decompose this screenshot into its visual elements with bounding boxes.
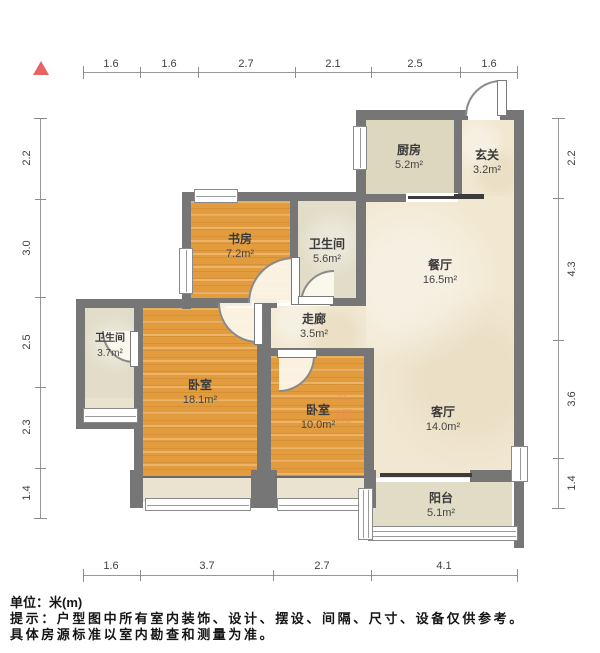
room-label-study: 书房 7.2m²	[200, 232, 280, 262]
window	[353, 126, 367, 170]
dimension-tick	[553, 198, 564, 199]
dimension-tick	[553, 340, 564, 341]
dimension-label: 3.7	[189, 559, 225, 573]
dimension-line-right	[558, 118, 559, 508]
window	[194, 189, 238, 203]
room-name: 阳台	[401, 491, 481, 506]
dimension-label: 1.6	[93, 559, 129, 573]
watermark: 正顺	[330, 385, 355, 431]
master-bedroom-door-leaf	[254, 303, 263, 345]
dimension-tick	[34, 118, 47, 119]
dimension-label: 3.6	[565, 381, 579, 417]
dimension-tick	[35, 199, 46, 200]
room-label-bath-main: 卫生间 5.6m²	[287, 237, 367, 267]
dimension-tick	[83, 66, 84, 79]
dimension-tick	[83, 569, 84, 582]
dimension-tick	[460, 67, 461, 78]
dimension-tick	[35, 387, 46, 388]
dimension-tick	[553, 458, 564, 459]
room-name: 卫生间	[78, 331, 142, 346]
dimension-tick	[552, 508, 565, 509]
balcony-railing	[368, 526, 518, 541]
room-label-corridor: 走廊 3.5m²	[274, 312, 354, 342]
room-name: 卫生间	[287, 237, 367, 252]
sliding-door	[408, 196, 456, 199]
dimension-line-top	[83, 72, 518, 73]
wall	[330, 298, 366, 306]
room-area: 5.1m²	[401, 506, 481, 521]
balcony-railing	[358, 488, 373, 540]
disclaimer-line-2: 具体房源标准以室内勘查和测量为准。	[10, 624, 275, 643]
dimension-tick	[517, 569, 518, 582]
dimension-tick	[140, 67, 141, 78]
dimension-label: 1.4	[20, 475, 34, 511]
dimension-label: 2.5	[397, 57, 433, 71]
room-name: 厨房	[369, 143, 449, 158]
dimension-label: 2.2	[565, 140, 579, 176]
dimension-tick	[517, 66, 518, 79]
dimension-tick	[552, 118, 565, 119]
north-arrow-icon	[33, 61, 49, 75]
dimension-label: 1.6	[93, 57, 129, 71]
wall	[130, 470, 143, 508]
room-name: 客厅	[403, 405, 483, 420]
dimension-label: 4.3	[565, 251, 579, 287]
room-label-bath-small: 卫生间 3.7m²	[78, 331, 142, 361]
floorplan-page: { "rooms": { "kitchen": {"name": "厨房", "…	[0, 0, 600, 653]
room-area: 5.2m²	[369, 158, 449, 173]
wall	[470, 470, 516, 482]
bay-window	[277, 498, 364, 511]
wall	[364, 348, 374, 478]
entry-door-arc	[465, 80, 501, 116]
bath-main-door-leaf	[298, 296, 334, 305]
dimension-label: 1.6	[151, 57, 187, 71]
dimension-label: 2.7	[304, 559, 340, 573]
room-label-balcony: 阳台 5.1m²	[401, 491, 481, 521]
dimension-tick	[371, 67, 372, 78]
dimension-label: 2.5	[20, 324, 34, 360]
room-area: 16.5m²	[400, 273, 480, 288]
room-area: 3.7m²	[78, 346, 142, 361]
window	[83, 408, 138, 423]
room-area: 14.0m²	[403, 420, 483, 435]
room-area: 7.2m²	[200, 247, 280, 262]
dimension-label: 4.1	[426, 559, 462, 573]
bay-window	[145, 498, 251, 511]
bay-window-frame	[143, 476, 251, 478]
dimension-tick	[273, 570, 274, 581]
dimension-tick	[35, 297, 46, 298]
dimension-tick	[198, 67, 199, 78]
dimension-label: 2.2	[20, 140, 34, 176]
dimension-tick	[140, 570, 141, 581]
dimension-label: 3.0	[20, 230, 34, 266]
floor-dining-living	[366, 196, 514, 478]
room-label-dining: 餐厅 16.5m²	[400, 258, 480, 288]
room-label-bedroom-master: 卧室 18.1m²	[160, 378, 240, 408]
room-name: 卧室	[160, 378, 240, 393]
room-name: 走廊	[274, 312, 354, 327]
room-label-kitchen: 厨房 5.2m²	[369, 143, 449, 173]
dimension-tick	[295, 67, 296, 78]
dimension-tick	[371, 570, 372, 581]
dimension-label: 1.6	[471, 57, 507, 71]
room-name: 餐厅	[400, 258, 480, 273]
dimension-tick	[35, 468, 46, 469]
room-name: 玄关	[447, 148, 527, 163]
room-area: 5.6m²	[287, 252, 367, 267]
dimension-label: 2.3	[20, 409, 34, 445]
sliding-door	[380, 473, 472, 477]
room-area: 3.2m²	[447, 163, 527, 178]
dimension-label: 1.4	[565, 465, 579, 501]
threshold	[454, 194, 484, 199]
room-label-living: 客厅 14.0m²	[403, 405, 483, 435]
second-bedroom-door-leaf	[277, 349, 317, 358]
entry-door-leaf	[497, 80, 507, 116]
dimension-line-bottom	[83, 575, 518, 576]
room-name: 书房	[200, 232, 280, 247]
dimension-line-left	[40, 118, 41, 518]
room-area: 18.1m²	[160, 393, 240, 408]
bay-window-frame	[275, 476, 364, 478]
window	[511, 446, 528, 482]
dimension-label: 2.7	[228, 57, 264, 71]
dimension-tick	[34, 518, 47, 519]
wall	[251, 470, 277, 508]
room-area: 3.5m²	[274, 327, 354, 342]
dimension-label: 2.1	[315, 57, 351, 71]
room-label-entry: 玄关 3.2m²	[447, 148, 527, 178]
window	[179, 248, 193, 294]
